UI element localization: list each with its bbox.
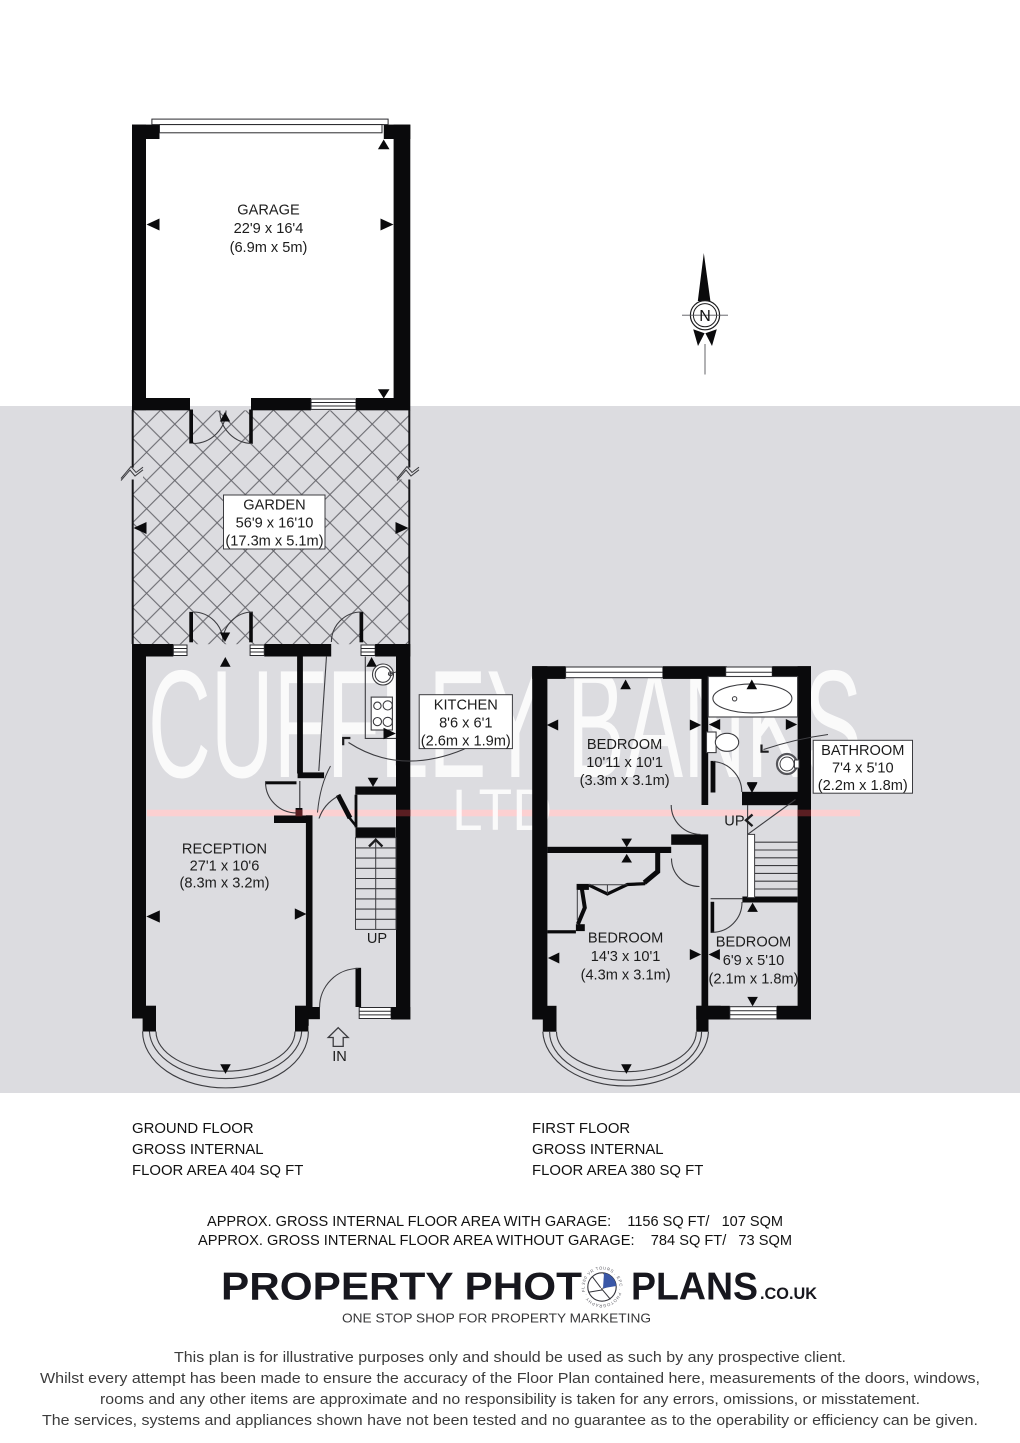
svg-text:GARDEN: GARDEN <box>243 498 305 514</box>
svg-text:PROPERTY PHOT: PROPERTY PHOT <box>221 1266 582 1309</box>
svg-text:8'6 x 6'1: 8'6 x 6'1 <box>439 716 492 732</box>
svg-text:PLANS: PLANS <box>631 1266 758 1309</box>
svg-text:The services, systems and appl: The services, systems and appliances sho… <box>42 1412 978 1429</box>
svg-text:(2.1m x 1.8m): (2.1m x 1.8m) <box>708 972 798 988</box>
svg-text:(2.2m x 1.8m): (2.2m x 1.8m) <box>818 778 908 794</box>
svg-text:BEDROOM: BEDROOM <box>588 931 663 947</box>
svg-text:14'3 x 10'1: 14'3 x 10'1 <box>591 949 661 965</box>
svg-text:(8.3m x 3.2m): (8.3m x 3.2m) <box>179 876 269 892</box>
svg-text:.CO.UK: .CO.UK <box>760 1285 817 1303</box>
svg-text:7'4 x 5'10: 7'4 x 5'10 <box>832 761 894 777</box>
svg-text:22'9 x 16'4: 22'9 x 16'4 <box>234 221 304 237</box>
svg-text:10'11 x 10'1: 10'11 x 10'1 <box>586 755 663 771</box>
svg-text:6'9 x 5'10: 6'9 x 5'10 <box>723 953 785 969</box>
svg-text:56'9 x 16'10: 56'9 x 16'10 <box>236 516 314 532</box>
svg-text:FIRST FLOOR: FIRST FLOOR <box>532 1121 630 1137</box>
svg-text:KITCHEN: KITCHEN <box>434 698 498 714</box>
svg-text:UP: UP <box>724 814 744 830</box>
svg-text:(3.3m x 3.1m): (3.3m x 3.1m) <box>580 773 670 789</box>
svg-text:rooms and any other items are: rooms and any other items are approximat… <box>100 1391 920 1408</box>
svg-text:(4.3m x 3.1m): (4.3m x 3.1m) <box>581 968 671 984</box>
svg-text:N: N <box>699 308 711 325</box>
svg-text:This plan is for illustrative: This plan is for illustrative purposes o… <box>174 1349 846 1366</box>
svg-text:(17.3m x 5.1m): (17.3m x 5.1m) <box>225 534 323 550</box>
svg-text:GROSS INTERNAL: GROSS INTERNAL <box>132 1142 264 1158</box>
svg-text:APPROX. GROSS INTERNAL FLOOR A: APPROX. GROSS INTERNAL FLOOR AREA WITHOU… <box>198 1233 792 1249</box>
svg-text:(2.6m x 1.9m): (2.6m x 1.9m) <box>421 734 511 750</box>
svg-text:BATHROOM: BATHROOM <box>821 743 904 759</box>
svg-text:IN: IN <box>332 1049 347 1065</box>
svg-text:BEDROOM: BEDROOM <box>587 737 662 753</box>
svg-text:APPROX. GROSS INTERNAL FLOOR A: APPROX. GROSS INTERNAL FLOOR AREA WITH G… <box>207 1214 783 1230</box>
svg-text:RECEPTION: RECEPTION <box>182 842 267 858</box>
svg-text:FLOOR AREA 404 SQ FT: FLOOR AREA 404 SQ FT <box>132 1163 303 1179</box>
svg-text:27'1 x 10'6: 27'1 x 10'6 <box>190 859 260 875</box>
svg-text:(6.9m x 5m): (6.9m x 5m) <box>230 240 308 256</box>
svg-text:UP: UP <box>367 931 387 947</box>
svg-text:Whilst every attempt has been: Whilst every attempt has been made to en… <box>40 1370 980 1387</box>
svg-text:BEDROOM: BEDROOM <box>716 935 791 951</box>
svg-text:FLOOR AREA 380 SQ FT: FLOOR AREA 380 SQ FT <box>532 1163 703 1179</box>
svg-text:GROSS INTERNAL: GROSS INTERNAL <box>532 1142 664 1158</box>
svg-text:GARAGE: GARAGE <box>237 203 300 219</box>
svg-text:GROUND FLOOR: GROUND FLOOR <box>132 1121 254 1137</box>
svg-text:ONE STOP SHOP FOR PROPERTY MAR: ONE STOP SHOP FOR PROPERTY MARKETING <box>342 1311 651 1326</box>
